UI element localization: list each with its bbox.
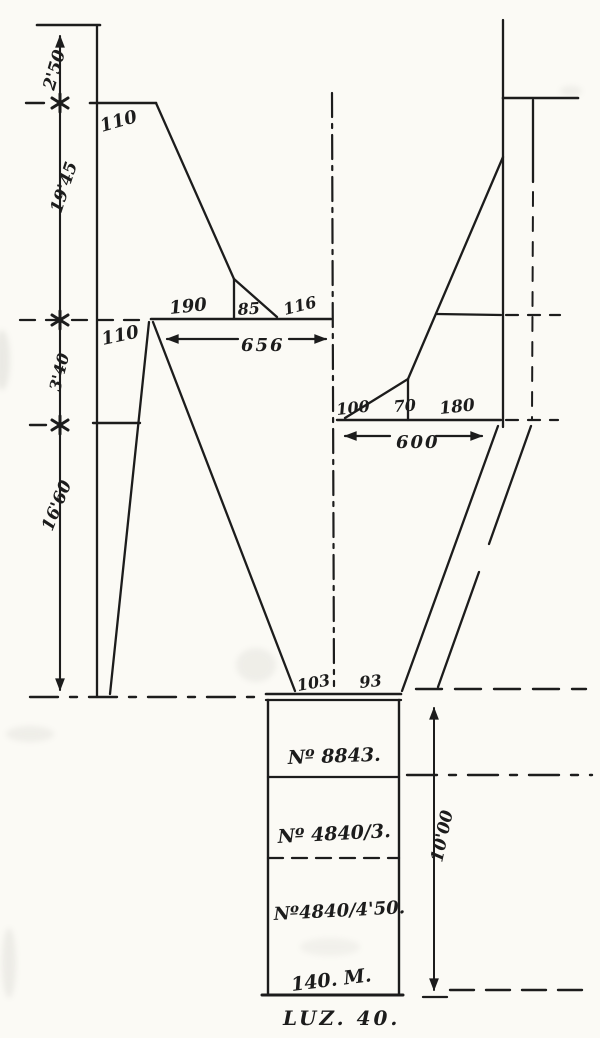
label-total-656: 656	[241, 335, 285, 356]
label-seg-70: 70	[393, 395, 417, 416]
label-seg-100: 100	[335, 397, 370, 419]
label-total-600: 600	[396, 432, 440, 453]
paper-background	[0, 0, 600, 1038]
sketch-canvas: 2'50 19'45 3'40 16'60 110 110 190 85 116…	[0, 0, 600, 1038]
label-drawing-no-8843: Nº 8843.	[286, 744, 381, 769]
label-luz-40: LUZ. 40.	[282, 1006, 400, 1030]
label-seg-85: 85	[236, 298, 261, 319]
sketch-sheet: 2'50 19'45 3'40 16'60 110 110 190 85 116…	[0, 0, 600, 1038]
label-seg-190: 190	[168, 294, 208, 319]
right-level-line	[437, 314, 501, 315]
label-footing-width-right: 93	[358, 671, 382, 692]
label-seg-180: 180	[438, 395, 476, 419]
